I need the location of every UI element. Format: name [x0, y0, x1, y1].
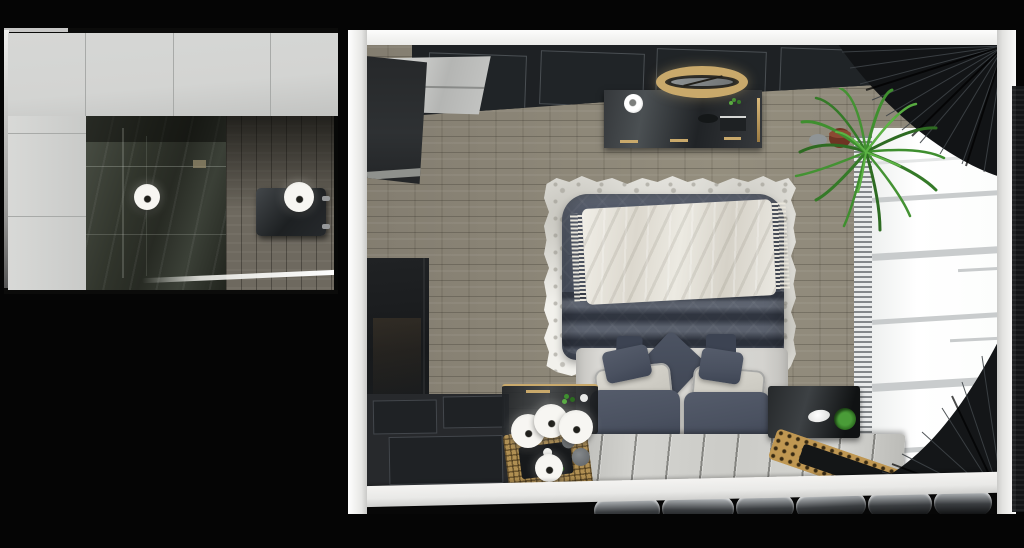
dresser — [604, 90, 762, 148]
throw-blanket — [582, 199, 777, 305]
mat-panel — [373, 399, 438, 434]
cabinet-seam — [173, 33, 174, 116]
wardrobe-cabinets-left — [8, 116, 86, 290]
ceiling-light-dressing-1 — [134, 184, 160, 210]
book-stack — [720, 116, 746, 131]
glass-frame-line — [86, 234, 226, 235]
nightstand-gold-handle — [526, 390, 550, 393]
cabinet-seam — [8, 216, 86, 217]
cushion-dark-right — [698, 347, 744, 385]
dresser-handle — [620, 140, 638, 143]
blanket-wrinkles — [582, 199, 777, 305]
cabinet-seam — [270, 33, 271, 116]
top-wall-section — [348, 30, 1016, 45]
potted-plant — [788, 88, 950, 252]
curtain-overflow-right — [1012, 86, 1024, 512]
dresser-gold-trim — [757, 98, 760, 142]
bedroom-plan-view — [348, 30, 1016, 514]
ceiling-light-dressing-2 — [284, 182, 314, 212]
wardrobe-cabinets-top — [8, 33, 338, 118]
decor-bowl — [698, 114, 718, 123]
bench-leg — [322, 196, 330, 201]
nightstand-plant — [564, 394, 569, 399]
ceiling-ring-light — [656, 66, 748, 98]
pendant-light-4 — [535, 454, 563, 482]
blind-slat-shadow — [872, 312, 1000, 325]
cabinet-seam — [85, 33, 86, 116]
glass-shadow — [86, 116, 226, 142]
glass-frame-line — [122, 128, 124, 278]
render-canvas — [0, 0, 1024, 548]
shelf-reflection — [193, 160, 206, 168]
white-dish — [807, 409, 830, 424]
room-edge-shadow — [334, 116, 338, 290]
wardrobe-edge-highlight — [367, 168, 421, 180]
sheer-fold-line — [958, 267, 1000, 272]
decor-plant-sprig — [732, 98, 736, 102]
dressing-room-view — [4, 28, 338, 294]
dresser-handle — [724, 137, 741, 140]
mat-panel — [389, 435, 504, 485]
wall-edge-highlight — [4, 28, 68, 32]
white-vase — [624, 94, 643, 113]
dresser-handle — [670, 139, 688, 142]
cabinet-seam — [8, 133, 86, 134]
left-wardrobe-upper — [365, 56, 427, 184]
left-wall-section — [348, 30, 367, 514]
small-pouf — [571, 447, 591, 467]
pendant-light-3 — [559, 410, 593, 444]
mat-panel — [443, 395, 506, 428]
bench-leg — [322, 224, 330, 229]
nightstand-decor-ball — [580, 394, 588, 402]
dark-floor-mat — [365, 394, 509, 490]
